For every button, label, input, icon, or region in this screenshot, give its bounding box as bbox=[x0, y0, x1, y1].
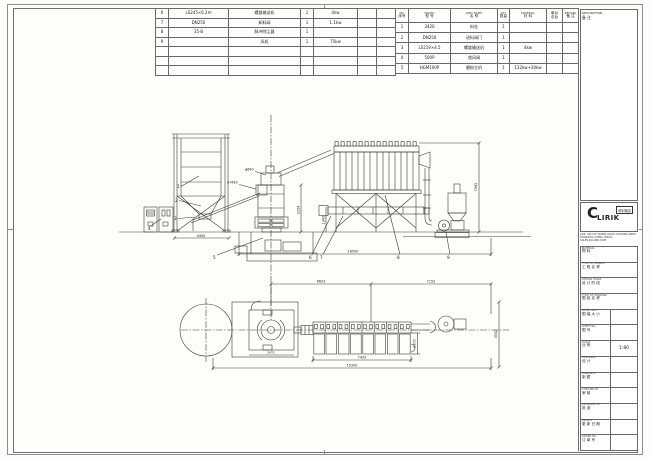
dim-mill-height: 2254 bbox=[297, 206, 301, 215]
bom-cell-remark bbox=[563, 23, 579, 33]
dim-fan-width: 3552 bbox=[494, 330, 498, 339]
fan-and-silencer bbox=[419, 152, 469, 238]
note-anchor-bolts: 4-M30 bbox=[227, 181, 238, 185]
dust-collector bbox=[319, 142, 429, 233]
bom-cell-unit bbox=[358, 9, 377, 19]
bom-cell-name: 螺旋输送机 bbox=[451, 43, 498, 53]
dim-silo-width: 4400 bbox=[197, 234, 206, 238]
bom-header-remark: REMARK备 注 bbox=[563, 9, 579, 23]
title-field-drawn-by: DRAWN BY制 图 bbox=[581, 373, 637, 389]
bom-cell-model: 35-B bbox=[169, 28, 229, 38]
bom-header-name: PART NAME名 称 bbox=[451, 9, 498, 23]
bom-cell-name: 料仓 bbox=[451, 23, 498, 33]
title-fields: MATERIAL物 料 TITLE OF PROJECT工 程 名 称 DESI… bbox=[580, 246, 638, 451]
plan-view: 6623 7152 2300 3552 2471 7429 15300 bbox=[180, 115, 509, 370]
mill-plan bbox=[232, 301, 298, 357]
dim-mill-width: 2471 bbox=[267, 351, 275, 355]
dim-collector-width: 2300 bbox=[413, 339, 417, 348]
bom-row: 8 35-B 脉冲除尘器 1 bbox=[156, 28, 396, 38]
title-field-sheet-no: SHEET NO.图 号 bbox=[581, 325, 637, 341]
company-address: ADD: NO.19 FUQING ROAD, PUDONG AREA, SHA… bbox=[579, 233, 639, 245]
bom-cell-unit bbox=[358, 18, 377, 28]
bom-header-unit: 单台总台 bbox=[547, 9, 563, 23]
scale-value: 1:80 bbox=[610, 341, 637, 356]
dust-collector-plan bbox=[313, 322, 415, 354]
dim-span-left: 6623 bbox=[317, 280, 326, 284]
bom-cell-qty: 1 bbox=[301, 18, 314, 28]
logo-text: LIRIK bbox=[597, 214, 619, 222]
bom-row: 1 3420 料仓 1 bbox=[396, 23, 579, 33]
bom-cell-no: 3 bbox=[396, 43, 409, 53]
callout-5: 5 bbox=[213, 255, 216, 260]
bom-cell-unit bbox=[547, 43, 563, 53]
bom-header-no: NO.序号 bbox=[396, 9, 409, 23]
bom-cell-qty: 1 bbox=[498, 33, 510, 43]
title-field-approved-by: APPROVED BY批 准 bbox=[581, 404, 637, 420]
bom-row: 2 DN250 进料阀门 1 bbox=[396, 33, 579, 43]
title-field-design-stage: DESIGN STAGE设 计 阶 段 bbox=[581, 278, 637, 294]
bom-cell-remark bbox=[377, 18, 396, 28]
company-logo: C LIRIK 科利瑞克 bbox=[580, 202, 638, 232]
bom-cell-power bbox=[314, 28, 358, 38]
callout-2: 2 bbox=[175, 198, 178, 203]
bom-cell-model: DN250 bbox=[409, 33, 451, 43]
title-field-project: TITLE OF PROJECT工 程 名 称 bbox=[581, 263, 637, 279]
bom-header-material: MATERIAL材 料 bbox=[510, 9, 547, 23]
callout-8: 8 bbox=[397, 255, 400, 260]
bom-cell-material bbox=[510, 33, 547, 43]
inclined-screw-conveyor bbox=[191, 185, 267, 231]
bom-cell-material bbox=[510, 23, 547, 33]
bom-cell-qty: 1 bbox=[301, 28, 314, 38]
ga-drawing: 4400 2254 1342 7562 16500 4-M30 φ640 bbox=[13, 70, 578, 452]
bom-header-model: MODEL型 号 bbox=[409, 9, 451, 23]
dim-collector-height: 7562 bbox=[474, 183, 478, 192]
bom-cell-qty: 1 bbox=[301, 9, 314, 19]
address-line2: SHANGHAI CHINA. EMAIL: SALES@CLIRIK.COM bbox=[580, 236, 638, 242]
bom-cell-unit bbox=[358, 28, 377, 38]
bom-row: 3 LS219×4.5 螺旋输送机 1 4kw bbox=[396, 43, 579, 53]
bom-cell-model: 3420 bbox=[409, 23, 451, 33]
bom-table-left: 6 LS245×6.2m 螺旋输送机 1 4kw 7 DN250 卸料阀 1 1… bbox=[155, 8, 396, 76]
bom-row: 7 DN250 卸料阀 1 1.1kw bbox=[156, 18, 396, 28]
silo bbox=[172, 134, 230, 232]
bom-cell-unit bbox=[358, 37, 377, 47]
description-label-cn: 备 注 bbox=[582, 15, 636, 21]
callout-6: 6 bbox=[309, 255, 312, 260]
bom-cell-unit bbox=[547, 23, 563, 33]
callout-1: 1 bbox=[177, 184, 180, 189]
bom-cell-power: 4kw bbox=[314, 9, 358, 19]
mill-to-collector-duct bbox=[277, 150, 334, 177]
bom-cell-model: LS245×6.2m bbox=[169, 9, 229, 19]
bom-cell-unit bbox=[547, 33, 563, 43]
bom-cell-no: 2 bbox=[396, 33, 409, 43]
bom-cell-power: 1.1kw bbox=[314, 18, 358, 28]
bom-cell-name: 卸料阀 bbox=[229, 18, 301, 28]
bom-cell-no: 9 bbox=[156, 37, 169, 47]
bom-cell-name: 脉冲除尘器 bbox=[229, 28, 301, 38]
bom-cell-no: 4 bbox=[396, 53, 409, 63]
title-field-update: UPDATE更 新 日 期 bbox=[581, 420, 637, 436]
bom-cell-qty: 1 bbox=[498, 53, 510, 63]
bom-cell-name: 锁风阀 bbox=[451, 53, 498, 63]
callout-9: 9 bbox=[447, 255, 450, 260]
bom-cell-name: 风机 bbox=[229, 37, 301, 47]
dim-total-length: 16500 bbox=[348, 250, 359, 254]
title-field-drawing-title: TITLE OF DRAWING图 纸 名 称 bbox=[581, 294, 637, 310]
bom-cell-qty: 1 bbox=[498, 43, 510, 53]
logo-chinese-box: 科利瑞克 bbox=[616, 206, 633, 214]
title-field-checked-by: CHECKED BY审 核 bbox=[581, 388, 637, 404]
bom-row: 9 风机 1 75kw bbox=[156, 37, 396, 47]
bom-cell-model: LS219×4.5 bbox=[409, 43, 451, 53]
dim-plan-total-length: 15300 bbox=[347, 364, 358, 368]
bom-cell-model bbox=[169, 37, 229, 47]
note-inlet-diameter: φ640 bbox=[245, 168, 254, 172]
title-field-designer: DESIGNER设 计 bbox=[581, 357, 637, 373]
plan-dimensions: 6623 7152 2300 3552 2471 7429 15300 bbox=[212, 280, 501, 371]
callout-3: 3 bbox=[174, 216, 177, 221]
bom-cell-model: DN250 bbox=[169, 18, 229, 28]
dim-span-right: 7152 bbox=[427, 280, 436, 284]
title-field-order-no: ORDER NO.订 单 号 bbox=[581, 435, 637, 450]
bom-table-right: NO.序号 MODEL型 号 PART NAME名 称 QTY数量 MATERI… bbox=[395, 8, 579, 74]
title-field-material: MATERIAL物 料 bbox=[581, 247, 637, 263]
bom-row: 6 LS245×6.2m 螺旋输送机 1 4kw bbox=[156, 9, 396, 19]
bom-cell-qty: 1 bbox=[498, 23, 510, 33]
title-field-paper-size: PAPER SIZE图 幅 大 小 bbox=[581, 310, 637, 326]
bom-row: 4 500P 锁风阀 1 bbox=[396, 53, 579, 63]
bom-cell-remark bbox=[377, 28, 396, 38]
bom-cell-name: 螺旋输送机 bbox=[229, 9, 301, 19]
bom-cell-name: 进料阀门 bbox=[451, 33, 498, 43]
dim-collector-length: 7429 bbox=[358, 356, 367, 360]
bom-cell-power: 75kw bbox=[314, 37, 358, 47]
bom-cell-qty: 1 bbox=[301, 37, 314, 47]
title-block: DESCRIPTION 备 注 C LIRIK 科利瑞克 ADD: NO.19 … bbox=[578, 8, 639, 451]
bom-cell-remark bbox=[377, 37, 396, 47]
bom-header-row: NO.序号 MODEL型 号 PART NAME名 称 QTY数量 MATERI… bbox=[396, 9, 579, 23]
bom-cell-no: 7 bbox=[156, 18, 169, 28]
callout-4: 4 bbox=[148, 226, 151, 231]
bom-row-empty bbox=[156, 56, 396, 66]
bom-cell-remark bbox=[563, 43, 579, 53]
bom-cell-model: 500P bbox=[409, 53, 451, 63]
bom-cell-remark bbox=[563, 33, 579, 43]
drawing-sheet: 6 LS245×6.2m 螺旋输送机 1 4kw 7 DN250 卸料阀 1 1… bbox=[0, 0, 650, 460]
callout-7: 7 bbox=[320, 255, 323, 260]
bom-cell-remark bbox=[377, 9, 396, 19]
bom-cell-unit bbox=[547, 53, 563, 63]
description-box: DESCRIPTION 备 注 bbox=[580, 9, 638, 201]
bom-cell-material: 4kw bbox=[510, 43, 547, 53]
bom-row-empty bbox=[156, 47, 396, 57]
dim-screw-height: 1342 bbox=[322, 216, 326, 225]
bom-cell-no: 8 bbox=[156, 28, 169, 38]
bom-cell-no: 6 bbox=[156, 9, 169, 19]
bom-cell-no: 1 bbox=[396, 23, 409, 33]
title-field-scale: SCALE比 例1:80 bbox=[581, 341, 637, 357]
bom-header-qty: QTY数量 bbox=[498, 9, 510, 23]
elevation-view: 4400 2254 1342 7562 16500 4-M30 φ640 bbox=[119, 134, 531, 261]
grinding-mill bbox=[235, 166, 317, 261]
bom-cell-material bbox=[510, 53, 547, 63]
bom-cell-remark bbox=[563, 53, 579, 63]
